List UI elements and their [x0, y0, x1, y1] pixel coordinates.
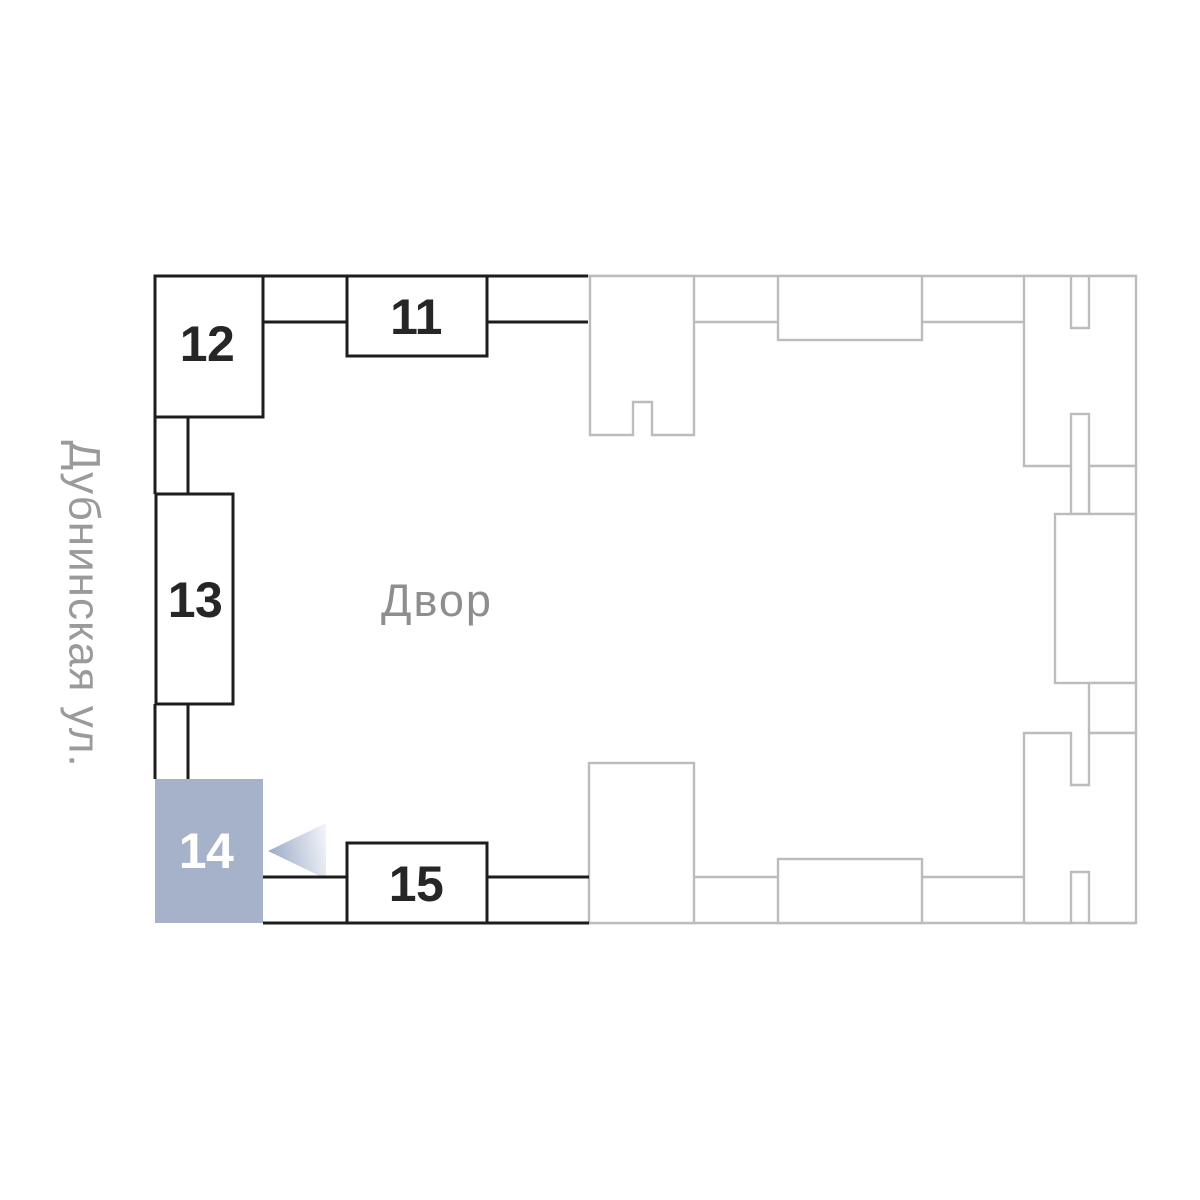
building-13[interactable]: 13: [156, 494, 233, 704]
selected-building-arrow-icon: [268, 823, 326, 879]
building-12-label: 12: [180, 316, 235, 372]
background-building-bottom-mid: [778, 859, 922, 923]
neighboring-buildings: [588, 276, 1136, 923]
courtyard-label: Двор: [381, 575, 493, 626]
building-11[interactable]: 11: [347, 276, 487, 356]
building-11-label: 11: [390, 289, 442, 345]
background-building-right-small-upper: [1089, 466, 1136, 514]
building-13-label: 13: [168, 572, 223, 628]
building-15[interactable]: 15: [347, 843, 487, 923]
building-15-label: 15: [389, 856, 444, 912]
background-building-right-small-lower: [1089, 683, 1136, 733]
background-building-right-corridor-upper: [1071, 414, 1089, 514]
street-name-label: Дубнинская ул.: [60, 440, 109, 767]
background-building-right-bottom: [1024, 733, 1136, 923]
site-plan-canvas: 12 11 13 14 15 Двор Дубнинская ул.: [0, 0, 1200, 1200]
site-plan-page: 12 11 13 14 15 Двор Дубнинская ул.: [0, 0, 1200, 1200]
background-building-bottom-tall: [589, 763, 694, 923]
background-building-right-middle: [1055, 514, 1136, 683]
background-building-top-notched: [590, 276, 694, 435]
building-14-selected[interactable]: 14: [155, 779, 263, 923]
building-14-label: 14: [179, 823, 234, 879]
background-building-top-mid: [778, 276, 922, 340]
building-12[interactable]: 12: [155, 276, 263, 417]
